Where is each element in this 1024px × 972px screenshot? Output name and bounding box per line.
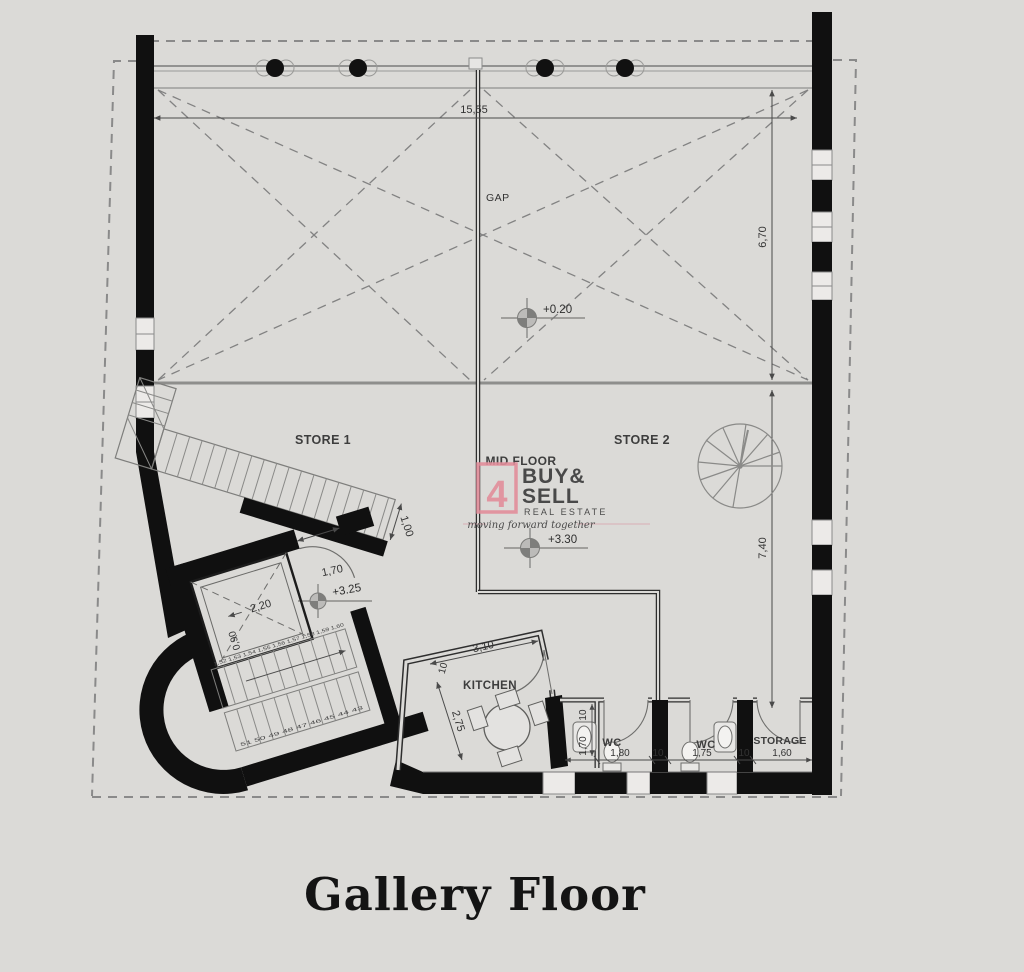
level-marker-ground: +0.20 [501, 298, 585, 338]
logo-sell: SELL [522, 485, 580, 508]
spiral-stair-icon [698, 424, 782, 508]
label-gap: GAP [486, 192, 510, 204]
dim-kitchen-depth-label: 2,75 [449, 709, 467, 733]
dim-stair-width: 1,00 [390, 504, 423, 547]
label-store-1: STORE 1 [295, 433, 351, 447]
dim-wc1-depth-label: 1,70 [578, 736, 589, 756]
floor-plan-page: 15,55 6,70 7,40 GAP +0.20 +3.30 +3.25 [0, 0, 1024, 972]
top-glazing [154, 58, 812, 88]
column-icon [526, 59, 564, 77]
wc-area: WC WC STORAGE 1,80 10 1,75 10 1,60 10 1,… [560, 700, 812, 772]
level-ground-label: +0.20 [543, 304, 572, 316]
void-cross-lines [158, 90, 808, 380]
dim-wc2-width-label: 1,75 [692, 748, 712, 759]
logo-number: 4 [486, 474, 507, 516]
dim-lobby-door-label: 1,70 [321, 563, 344, 579]
column-icons [256, 59, 644, 77]
dim-wc1-width-label: 1,80 [610, 748, 630, 759]
level-mid-label: +3.30 [548, 534, 577, 546]
kitchen-table-icon [467, 689, 549, 767]
wc2-sink-icon [714, 722, 736, 752]
level-marker-mid: +3.30 [504, 528, 588, 568]
dim-total-width-label: 15,55 [460, 104, 488, 116]
label-storage: STORAGE [753, 735, 806, 747]
dim-wall-b-label: 10 [738, 748, 750, 759]
left-wall [136, 35, 186, 638]
column-icon [256, 59, 294, 77]
dim-storage-width-label: 1,60 [772, 748, 792, 759]
dim-void-depth-label: 6,70 [757, 226, 769, 247]
floor-title: Gallery Floor [175, 868, 775, 921]
label-store-2: STORE 2 [614, 433, 670, 447]
column-icon [606, 59, 644, 77]
dim-wc-wall-label: 10 [578, 709, 589, 721]
dim-total-width: 15,55 [154, 104, 797, 118]
dim-kitchen-wall-label: 10 [437, 661, 451, 675]
floor-plan-drawing: 15,55 6,70 7,40 GAP +0.20 +3.30 +3.25 [0, 0, 1024, 972]
dim-stair-width-label: 1,00 [397, 514, 415, 538]
stair-elevator-section: 2,20 0,90 1,52 1,53 1,54 1,55 1,56 1,57 … [99, 507, 438, 815]
level-landing-label: +3.25 [331, 582, 362, 599]
logo-tagline: moving forward together [467, 520, 595, 531]
label-kitchen: KITCHEN [463, 680, 517, 692]
column-icon [339, 59, 377, 77]
dim-hall-depth-label: 7,40 [757, 537, 769, 558]
logo-subtitle: REAL ESTATE [524, 507, 608, 517]
brand-watermark: 4 BUY& SELL REAL ESTATE moving forward t… [463, 464, 650, 531]
dim-elevator-width-label: 2,20 [249, 598, 273, 616]
dim-wall-a-label: 10 [652, 748, 664, 759]
kitchen: 3,10 10 2,75 KITCHEN [398, 633, 568, 770]
dim-kitchen-width-label: 3,10 [472, 639, 496, 656]
right-wall [812, 12, 832, 795]
